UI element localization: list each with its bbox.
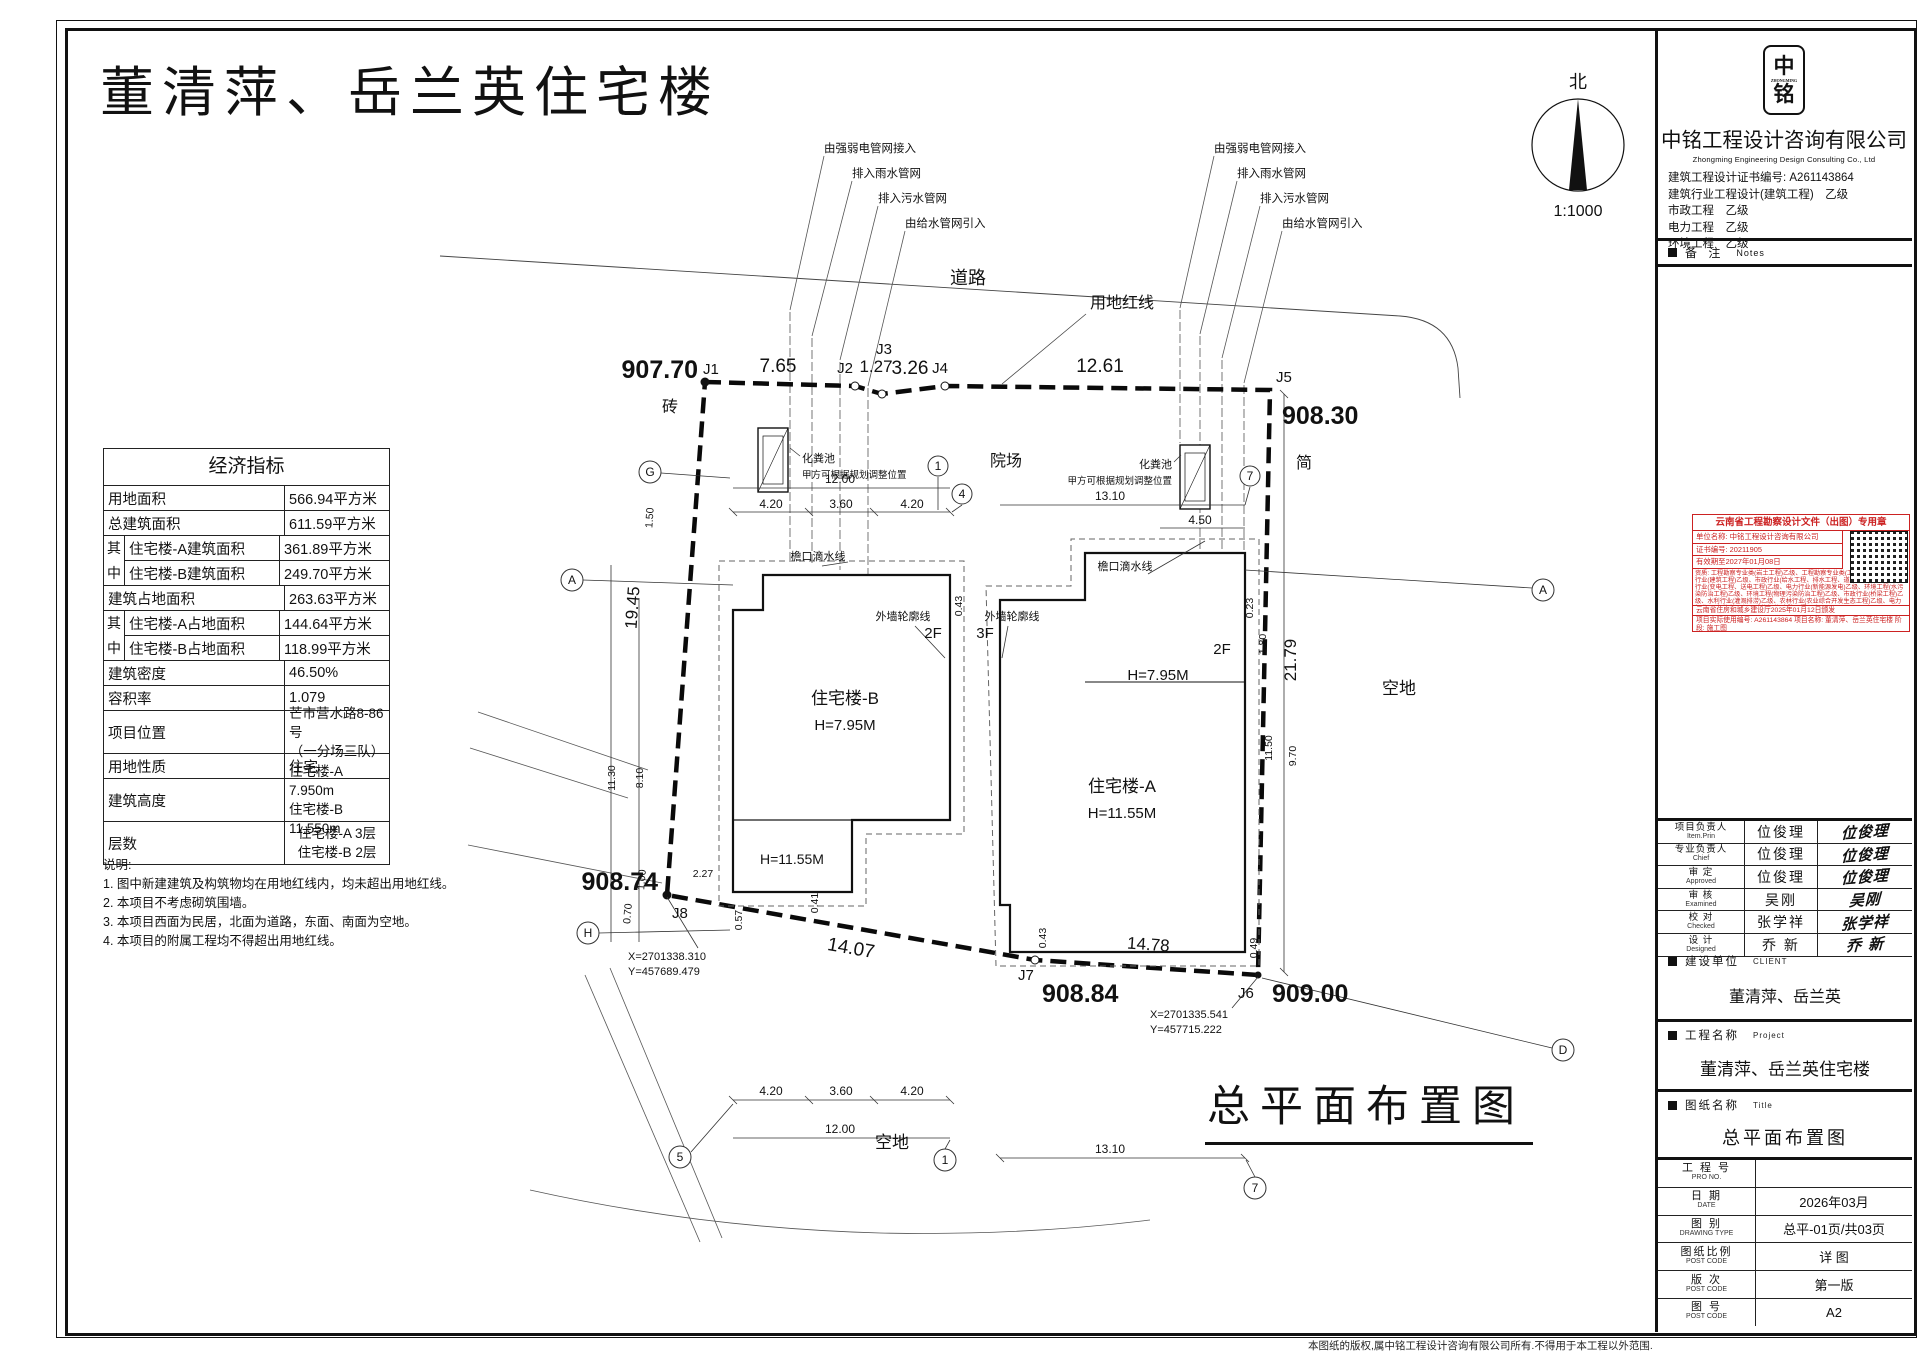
dim-left-edge: 19.45 — [622, 586, 644, 630]
stamp-validity: 有效期至2027年01月08日 — [1693, 556, 1843, 569]
point-label-j5: J5 — [1276, 369, 1292, 386]
econ-value-line1: 住宅楼-A 3层 — [298, 824, 376, 843]
wall-outline-label-right: 外墙轮廓线 — [985, 609, 1040, 623]
note-item: 3. 本项目西面为民居，北面为道路，东面、南面为空地。 — [103, 913, 473, 932]
dim-top-4: 12.61 — [1076, 356, 1124, 377]
econ-label: 建筑高度 — [104, 779, 285, 821]
note-item: 4. 本项目的附属工程均不得超出用地红线。 — [103, 932, 473, 951]
role-en: Approved — [1686, 877, 1716, 886]
econ-label: 用地面积 — [104, 486, 285, 510]
group-char-bottom: 中 — [107, 563, 121, 583]
boundary-point-j7 — [1031, 956, 1039, 964]
terrain-line-south — [530, 1190, 1150, 1233]
spot-elevation-j1: 907.70 — [622, 356, 698, 384]
info-label-en: POST CODE — [1686, 1312, 1727, 1322]
client-label-en: CLIENT — [1753, 957, 1787, 966]
chain-4-20-top1: 4.20 — [759, 497, 783, 511]
info-label: 版 次 — [1691, 1275, 1722, 1285]
client-block: 建设单位 CLIENT 董清萍、岳兰英 — [1658, 948, 1912, 1022]
personnel-row: 校 对Checked 张学祥 张学祥 — [1658, 911, 1912, 934]
stamp-qr-code — [1851, 532, 1907, 582]
role-cn: 审 核 — [1689, 891, 1714, 900]
info-row: 日 期DATE 2026年03月 — [1658, 1188, 1912, 1216]
chain-4-20-bot1: 4.20 — [759, 1084, 783, 1098]
section-square-icon — [1668, 248, 1677, 257]
dim-11-50: 11.50 — [1263, 735, 1275, 761]
coord-j8-x: X=2701338.310 — [628, 951, 706, 963]
company-name: 中铭工程设计咨询有限公司 — [1658, 123, 1910, 153]
dim-bottom-2: 14.78 — [1126, 934, 1170, 956]
info-label-en: POST CODE — [1686, 1285, 1727, 1295]
floors-2f-a-wing: 2F — [1213, 641, 1231, 658]
logo-char-2: 铭 — [1774, 83, 1795, 106]
section-square-icon — [1668, 1101, 1677, 1110]
open-land-south-label: 空地 — [875, 1133, 909, 1152]
general-notes: 说明: 1. 图中新建建筑及构筑物均在用地红线内，均未超出用地红线。 2. 本项… — [103, 856, 473, 951]
role-cn: 校 对 — [1689, 913, 1714, 922]
copyright-note: 本图纸的版权,属中铭工程设计咨询有限公司所有.不得用于本工程以外范围. — [1308, 1338, 1653, 1353]
econ-label: 总建筑面积 — [104, 511, 285, 535]
boundary-point-j1 — [701, 378, 710, 387]
project-name: 董清萍、岳兰英住宅楼 — [1658, 1055, 1912, 1080]
axis-bubble-1t: 1 — [935, 459, 942, 473]
dim-8-10: 8.10 — [634, 768, 646, 789]
econ-group-site-area: 其中 住宅楼-A占地面积144.64平方米 住宅楼-B占地面积118.99平方米 — [104, 611, 389, 661]
eaves-label-right: 檐口滴水线 — [1098, 559, 1153, 573]
path-line-2 — [610, 968, 722, 1238]
eaves-label-left: 檐口滴水线 — [791, 549, 846, 563]
company-cert-no: 建筑工程设计证书编号: A261143864 — [1668, 170, 1910, 187]
septic-tank-right — [1174, 445, 1210, 509]
econ-group-building-area: 其中 住宅楼-A建筑面积361.89平方米 住宅楼-B建筑面积249.70平方米 — [104, 536, 389, 586]
point-label-j4: J4 — [932, 360, 948, 377]
econ-value: 249.70平方米 — [280, 561, 389, 585]
person-name: 位俊理 — [1745, 844, 1818, 866]
septic-left-note: 甲方可根据规划调整位置 — [802, 469, 907, 481]
chain-3-60-top: 3.60 — [829, 497, 853, 511]
dim-0-57: 0.57 — [733, 910, 745, 931]
econ-value: 46.50% — [285, 661, 389, 685]
point-label-j3: J3 — [876, 341, 892, 358]
company-qual-3: 电力工程 乙级 — [1668, 220, 1910, 237]
chain-4-20-bot2: 4.20 — [900, 1084, 924, 1098]
info-row: 图 别DRAWING TYPE 总平-01页/共03页 — [1658, 1216, 1912, 1244]
stamp-unit-name: 单位名称: 中铭工程设计咨询有限公司 — [1693, 531, 1843, 544]
dim-0-43-bot: 0.43 — [1037, 928, 1049, 949]
econ-label: 建筑占地面积 — [104, 586, 285, 610]
logo-char-1: 中 — [1774, 55, 1795, 78]
personnel-row: 专业负责人Chief 位俊理 位俊理 — [1658, 844, 1912, 867]
econ-label: 容积率 — [104, 686, 285, 710]
info-label: 日 期 — [1691, 1191, 1722, 1201]
approval-stamp: 云南省工程勘察设计文件（出图）专用章 单位名称: 中铭工程设计咨询有限公司 证书… — [1692, 514, 1910, 632]
remarks-bar: 备 注 Notes — [1658, 241, 1912, 267]
building-a-name: 住宅楼-A — [1088, 777, 1157, 796]
point-label-j1: J1 — [703, 361, 719, 378]
axis-bubble-1b: 1 — [942, 1153, 949, 1167]
company-name-en: Zhongming Engineering Design Consulting … — [1658, 155, 1910, 164]
open-land-east-label: 空地 — [1382, 679, 1416, 698]
role-en: Chief — [1693, 854, 1709, 863]
drawing-name: 总平面布置图 — [1658, 1124, 1912, 1150]
personnel-row: 项目负责人Item.Prin 位俊理 位俊理 — [1658, 821, 1912, 844]
brick-label: 砖 — [662, 398, 678, 416]
chain-13-10-bot: 13.10 — [1095, 1142, 1125, 1156]
redline-leader — [1002, 314, 1086, 384]
project-label-en: Project — [1753, 1031, 1785, 1040]
dim-0-49: 0.49 — [1248, 938, 1260, 959]
personnel-row: 审 定Approved 位俊理 位俊理 — [1658, 866, 1912, 889]
role-cn: 审 定 — [1689, 868, 1714, 877]
chain-12-00-bot: 12.00 — [825, 1122, 855, 1136]
neighbor-line-1 — [478, 712, 648, 770]
person-name: 吴刚 — [1745, 889, 1818, 911]
dim-0-23: 0.23 — [1244, 598, 1256, 619]
stamp-title: 云南省工程勘察设计文件（出图）专用章 — [1693, 515, 1909, 531]
info-row: 工 程 号PRO NO. — [1658, 1160, 1912, 1188]
econ-label: 住宅楼-A建筑面积 — [125, 536, 280, 560]
group-char-top: 其 — [107, 538, 121, 558]
person-signature: 吴刚 — [1849, 888, 1882, 911]
septic-left-name: 化粪池 — [802, 451, 835, 465]
info-value: 第一版 — [1756, 1271, 1912, 1298]
util-water-left: 由给水管网引入 — [905, 216, 986, 230]
section-square-icon — [1668, 957, 1677, 966]
util-power-right: 由强弱电管网接入 — [1214, 141, 1306, 155]
axis-bubble-a: A — [568, 573, 576, 587]
wall-outline-label-left: 外墙轮廓线 — [876, 609, 931, 623]
role-cn: 项目负责人 — [1675, 823, 1728, 832]
econ-value-line1: 芒市营水路8-86号 — [289, 704, 385, 742]
building-b-height: H=7.95M — [814, 717, 875, 734]
person-name: 位俊理 — [1745, 821, 1818, 843]
person-name: 张学祥 — [1745, 911, 1818, 933]
util-rain-right: 排入雨水管网 — [1237, 166, 1306, 180]
chain-13-10-top: 13.10 — [1095, 489, 1125, 503]
info-row: 版 次POST CODE 第一版 — [1658, 1271, 1912, 1299]
dim-11-30: 11.30 — [606, 765, 618, 791]
econ-value: 263.63平方米 — [285, 586, 389, 610]
info-label-en: DATE — [1697, 1201, 1715, 1211]
north-arrow: 北 1:1000 — [1532, 72, 1624, 220]
person-signature: 张学祥 — [1841, 910, 1890, 934]
econ-value: 144.64平方米 — [280, 611, 389, 635]
notes-title: 说明: — [103, 856, 473, 875]
building-b-annex-height: H=11.55M — [760, 851, 824, 867]
axis-bubble-h: H — [584, 926, 593, 940]
info-label-en: PRO NO. — [1692, 1173, 1722, 1183]
econ-label: 用地性质 — [104, 754, 285, 778]
coord-j6-x: X=2701335.541 — [1150, 1009, 1228, 1021]
drawing-title-main: 总平面布置图 — [1205, 1072, 1533, 1145]
econ-value: 118.99平方米 — [280, 636, 389, 660]
chain-4-50: 4.50 — [1188, 513, 1212, 527]
scale-label: 1:1000 — [1554, 203, 1603, 220]
note-item: 1. 图中新建建筑及构筑物均在用地红线内，均未超出用地红线。 — [103, 875, 473, 894]
role-en: Checked — [1687, 922, 1715, 931]
dim-bottom-1: 14.07 — [826, 934, 876, 963]
company-qual-2: 市政工程 乙级 — [1668, 203, 1910, 220]
company-logo-seal: 中 ZHONGMING 铭 — [1763, 45, 1805, 115]
person-signature: 位俊理 — [1841, 820, 1890, 844]
septic-right-note: 甲方可根据规划调整位置 — [1067, 475, 1172, 487]
info-value — [1756, 1160, 1912, 1187]
drawing-name-label-en: Title — [1753, 1101, 1773, 1110]
econ-value: 611.59平方米 — [285, 511, 389, 535]
info-label: 图 号 — [1691, 1302, 1722, 1312]
util-power-left: 由强弱电管网接入 — [824, 141, 916, 155]
dim-9-70: 9.70 — [1287, 746, 1299, 767]
building-a-wing-height: H=7.95M — [1127, 667, 1188, 684]
axis-bubble-d: D — [1559, 1043, 1568, 1057]
util-water-right: 由给水管网引入 — [1282, 216, 1363, 230]
sheet-info-table: 工 程 号PRO NO. 日 期DATE 2026年03月 图 别DRAWING… — [1658, 1160, 1912, 1326]
point-label-j7: J7 — [1018, 967, 1034, 984]
econ-label: 建筑密度 — [104, 661, 285, 685]
boundary-point-j8 — [663, 891, 672, 900]
project-label: 工程名称 — [1685, 1027, 1739, 1043]
info-label: 图 别 — [1691, 1219, 1722, 1229]
drawing-name-block: 图纸名称 Title 总平面布置图 — [1658, 1092, 1912, 1160]
axis-bubble-7b: 7 — [1252, 1181, 1259, 1195]
econ-label: 住宅楼-A占地面积 — [125, 611, 280, 635]
coord-j8-y: Y=457689.479 — [628, 966, 700, 978]
point-label-j8: J8 — [672, 905, 688, 922]
info-value: 2026年03月 — [1756, 1188, 1912, 1215]
info-label-en: POST CODE — [1686, 1257, 1727, 1267]
path-line-1 — [585, 975, 700, 1242]
road-label: 道路 — [950, 268, 986, 288]
axis-bubble-5b: 5 — [677, 1150, 684, 1164]
septic-right-name: 化粪池 — [1139, 457, 1172, 471]
info-label: 图纸比例 — [1681, 1247, 1733, 1257]
company-block: 中 ZHONGMING 铭 中铭工程设计咨询有限公司 Zhongming Eng… — [1658, 31, 1910, 253]
role-cn: 专业负责人 — [1675, 845, 1728, 854]
econ-label: 住宅楼-B建筑面积 — [125, 561, 280, 585]
yard-label: 院场 — [990, 452, 1022, 470]
economic-indicators-table: 经济指标 用地面积566.94平方米 总建筑面积611.59平方米 其中 住宅楼… — [103, 448, 390, 865]
project-block: 工程名称 Project 董清萍、岳兰英住宅楼 — [1658, 1022, 1912, 1092]
north-label: 北 — [1569, 72, 1587, 92]
redline-label: 用地红线 — [1090, 294, 1154, 312]
boundary-point-j4 — [941, 382, 949, 390]
econ-value: 566.94平方米 — [285, 486, 389, 510]
role-en: Examined — [1685, 900, 1716, 909]
spot-elevation-j6: 909.00 — [1272, 980, 1348, 1008]
econ-label: 项目位置 — [104, 711, 285, 753]
dim-1-50: 1.50 — [643, 507, 656, 528]
dim-0-41: 0.41 — [809, 893, 821, 914]
dim-top-3: 3.26 — [892, 358, 929, 379]
info-value: 详 图 — [1756, 1243, 1912, 1270]
chain-3-60-bot: 3.60 — [829, 1084, 853, 1098]
company-qual-1: 建筑行业工程设计(建筑工程) 乙级 — [1668, 187, 1910, 204]
person-name: 位俊理 — [1745, 866, 1818, 888]
septic-tank-left — [758, 428, 800, 492]
point-label-j2: J2 — [837, 360, 853, 377]
remarks-label-en: Notes — [1736, 248, 1765, 258]
util-sewage-right: 排入污水管网 — [1260, 191, 1329, 205]
role-en: Item.Prin — [1687, 832, 1715, 841]
remarks-label: 备 注 — [1685, 244, 1724, 261]
floors-2f-b: 2F — [924, 625, 942, 642]
axis-bubble-g: G — [645, 465, 654, 479]
building-b-name: 住宅楼-B — [811, 689, 879, 708]
point-label-j6: J6 — [1238, 985, 1254, 1002]
personnel-row: 审 核Examined 吴刚 吴刚 — [1658, 889, 1912, 912]
note-item: 2. 本项目不考虑砌筑围墙。 — [103, 894, 473, 913]
building-a-height: H=11.55M — [1088, 805, 1157, 822]
dim-top-1: 7.65 — [760, 356, 797, 377]
stamp-issuer: 云南省住房和城乡建设厅2025年01月12日颁发 — [1693, 606, 1909, 616]
drawing-sheet: 董清萍、岳兰英住宅楼 — [0, 0, 1920, 1357]
axis-bubble-7t: 7 — [1247, 469, 1254, 483]
econ-value-line1: 住宅楼-A 7.950m — [289, 762, 385, 800]
chain-4-20-top2: 4.20 — [900, 497, 924, 511]
util-sewage-left: 排入污水管网 — [878, 191, 947, 205]
spot-elevation-j5: 908.30 — [1282, 402, 1358, 430]
client-name: 董清萍、岳兰英 — [1658, 983, 1912, 1007]
econ-table-header: 经济指标 — [104, 449, 389, 486]
axis-bubble-4t: 4 — [959, 487, 966, 501]
econ-value: 361.89平方米 — [280, 536, 389, 560]
person-signature: 位俊理 — [1841, 842, 1890, 866]
coord-j6-y: Y=457715.222 — [1150, 1024, 1222, 1036]
jian-label: 简 — [1296, 454, 1312, 472]
dim-top-2: 1.27 — [859, 357, 892, 376]
section-square-icon — [1668, 1031, 1677, 1040]
dim-0-70: 0.70 — [621, 903, 635, 925]
dim-1-80: 1.80 — [1257, 634, 1269, 655]
dim-1-00: 1.00 — [635, 869, 649, 891]
info-value: 总平-01页/共03页 — [1756, 1216, 1912, 1243]
info-row: 图纸比例POST CODE 详 图 — [1658, 1243, 1912, 1271]
dim-0-43-top: 0.43 — [953, 596, 965, 617]
info-value: A2 — [1756, 1299, 1912, 1326]
drawing-name-label: 图纸名称 — [1685, 1097, 1739, 1113]
spot-elevation-j7: 908.84 — [1042, 980, 1119, 1008]
dim-right-edge: 21.79 — [1281, 639, 1300, 682]
group-char-top: 其 — [107, 613, 121, 633]
client-label: 建设单位 — [1685, 953, 1739, 969]
group-char-bottom: 中 — [107, 638, 121, 658]
dim-2-27: 2.27 — [693, 868, 714, 880]
econ-label: 住宅楼-B占地面积 — [125, 636, 280, 660]
person-signature: 位俊理 — [1841, 865, 1890, 889]
boundary-point-j2 — [851, 382, 859, 390]
role-cn: 设 计 — [1689, 936, 1714, 945]
util-rain-left: 排入雨水管网 — [852, 166, 921, 180]
stamp-project-info: 项目实际使用编号: A261143864 项目名称: 董清萍、岳兰英住宅楼 阶段… — [1693, 616, 1909, 634]
personnel-table: 项目负责人Item.Prin 位俊理 位俊理 专业负责人Chief 位俊理 位俊… — [1658, 818, 1912, 957]
axis-bubble-a2: A — [1539, 583, 1547, 597]
info-label: 工 程 号 — [1682, 1163, 1731, 1173]
boundary-point-j3 — [878, 390, 886, 398]
info-row: 图 号POST CODE A2 — [1658, 1299, 1912, 1326]
stamp-cert-no: 证书编号: 20211905 — [1693, 544, 1843, 557]
floors-3f-a: 3F — [976, 625, 994, 642]
info-label-en: DRAWING TYPE — [1680, 1229, 1734, 1239]
